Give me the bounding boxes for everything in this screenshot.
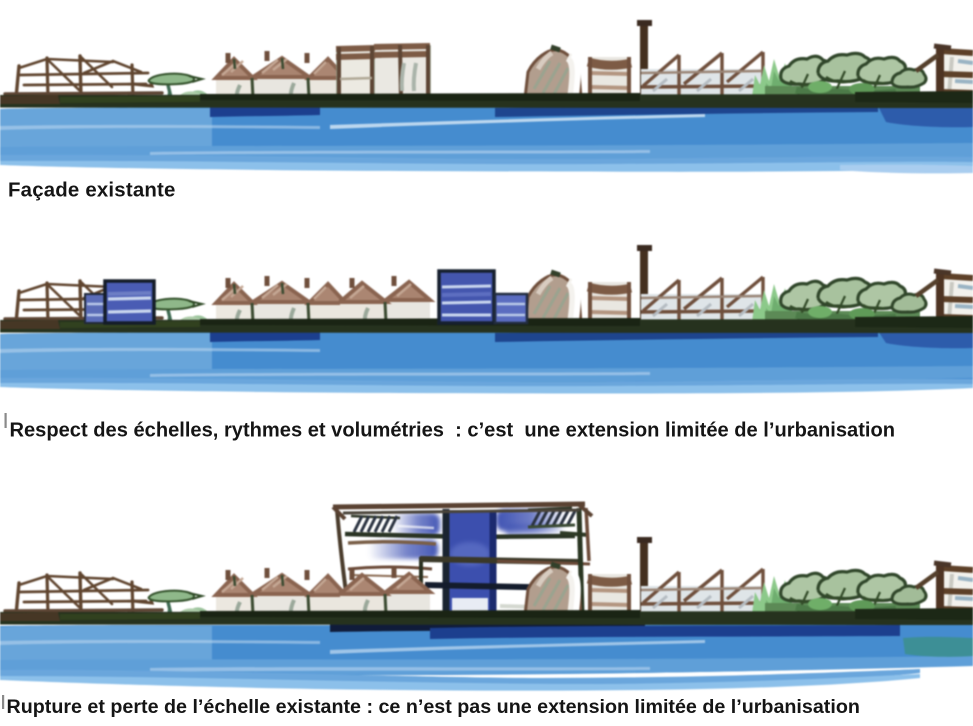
svg-text:Rupture et perte de l’échelle: Rupture et perte de l’échelle existante …: [7, 696, 860, 718]
svg-text:Façade existante: Façade existante: [8, 180, 176, 202]
svg-text:Respect des échelles, rythmes: Respect des échelles, rythmes et volumét…: [10, 420, 896, 442]
